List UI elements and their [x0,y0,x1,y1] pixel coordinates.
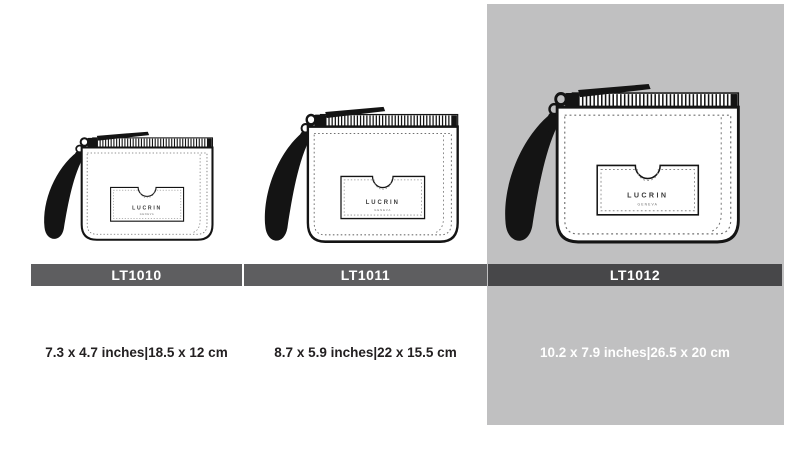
pouch-illustration-lt1011 [259,106,464,252]
dimensions-label-lt1011: 8.7 x 5.9 inches|22 x 15.5 cm [244,344,487,361]
size-comparison-widget: LUCRIN GENEVA LT1010 LT1011 LT1012 7.3 x… [0,0,800,449]
pouch-illustration-lt1012 [498,83,746,254]
product-code-bar-lt1012-selected[interactable]: LT1012 [488,264,782,286]
dimensions-label-lt1010: 7.3 x 4.7 inches|18.5 x 12 cm [31,344,242,361]
product-code-bar-lt1010[interactable]: LT1010 [31,264,242,286]
product-code-bar-lt1011[interactable]: LT1011 [244,264,487,286]
pouch-illustration-lt1010 [39,131,218,248]
dimensions-label-lt1012: 10.2 x 7.9 inches|26.5 x 20 cm [488,344,782,361]
